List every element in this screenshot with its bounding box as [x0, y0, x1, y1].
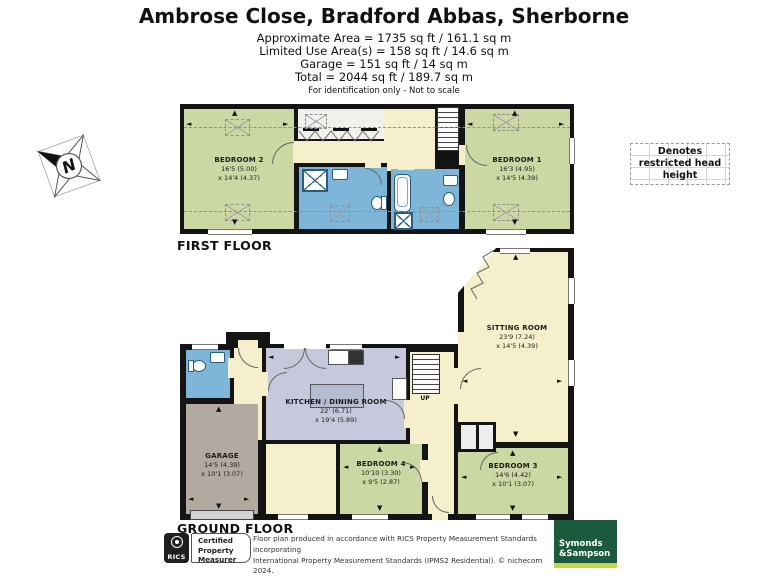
toilet-fixture: [443, 192, 455, 206]
agent-line: &Sampson: [559, 550, 610, 560]
dimension-arrow: ◄: [268, 354, 273, 361]
restricted-area-marker: [420, 207, 439, 222]
dimension-arrow: ◄: [343, 464, 348, 471]
opening-hall-sitting: [452, 368, 460, 404]
dimension-arrow: ◄: [467, 121, 472, 128]
dimension-arrow: ▼: [377, 505, 382, 512]
shower-fixture: [302, 169, 328, 192]
restricted-area-marker: [330, 205, 350, 222]
utility-area: [266, 444, 336, 514]
agent-logo-text: Symonds &Sampson: [559, 540, 610, 560]
door-opening: [398, 164, 414, 170]
door-opening: [432, 512, 448, 520]
window: [208, 229, 252, 235]
rics-brand-text: RICS: [164, 553, 189, 561]
stairs-down: [437, 107, 459, 151]
dimension-arrow: ►: [395, 354, 400, 361]
dimension-arrow: ▲: [510, 450, 515, 457]
dimension-arrow: ▼: [232, 219, 237, 226]
door-opening: [404, 400, 412, 428]
bath-inner: [397, 177, 408, 207]
dimension-arrow: ►: [410, 464, 415, 471]
kitchen-sink: [328, 350, 350, 365]
disclaimer-line: International Property Measurement Stand…: [253, 556, 553, 576]
kitchen-hob: [348, 350, 364, 365]
dimension-arrow: ▲: [232, 110, 237, 117]
window: [476, 514, 510, 520]
window: [569, 138, 575, 164]
disclaimer-line: Floor plan produced in accordance with R…: [253, 534, 553, 556]
window: [486, 229, 526, 235]
window: [568, 360, 575, 386]
basin-fixture: [443, 175, 458, 186]
area-line: Approximate Area = 1735 sq ft / 161.1 sq…: [0, 31, 768, 45]
area-line: Garage = 151 sq ft / 14 sq m: [0, 57, 768, 71]
garage-door: [190, 510, 254, 520]
dimension-arrow: ▲: [216, 406, 221, 413]
agent-logo: Symonds &Sampson: [554, 520, 617, 568]
kitchen-island: [310, 384, 364, 408]
dimension-arrow: ◄: [462, 378, 467, 385]
closet-divider: [476, 425, 479, 449]
dimension-arrow: ►: [557, 378, 562, 385]
dimension-arrow: ◄: [461, 474, 466, 481]
door-opening: [365, 162, 381, 168]
compass-icon: N: [33, 130, 105, 202]
ground-floor-plan: UP: [180, 248, 574, 520]
restricted-area-marker: [225, 119, 250, 136]
area-line: Total = 2044 sq ft / 189.7 sq m: [0, 70, 768, 84]
area-line: Limited Use Area(s) = 158 sq ft / 14.6 s…: [0, 44, 768, 58]
bay-zigzag: [452, 248, 496, 300]
restricted-area-marker: [225, 204, 250, 221]
shower-fixture: [394, 212, 413, 230]
door-opening: [260, 372, 268, 396]
dimension-arrow: ▼: [510, 505, 515, 512]
bath-fixture: [394, 174, 411, 212]
window: [522, 514, 548, 520]
stairs-up: [412, 354, 440, 394]
dimension-arrow: ◄: [186, 121, 191, 128]
toilet-fixture: [192, 360, 206, 372]
landing: [298, 141, 435, 163]
first-floor-plan: DOWN ◄: [180, 104, 574, 234]
rics-lion-icon: [171, 536, 183, 548]
window: [352, 514, 388, 520]
dimension-arrow: ▼: [513, 431, 518, 438]
toilet-fixture: [188, 360, 194, 372]
toilet-fixture: [381, 196, 387, 210]
dimension-arrow: ►: [244, 496, 249, 503]
door-opening: [228, 358, 236, 378]
rics-lion-dot: [175, 540, 179, 544]
identification-note: For identification only - Not to scale: [0, 86, 768, 96]
dimension-arrow: ▲: [513, 254, 518, 261]
basin-fixture: [332, 169, 348, 180]
cert-line: Property: [198, 546, 250, 556]
restricted-head-height-legend: Denotes restricted head height: [630, 143, 730, 185]
restricted-area-marker: [305, 114, 327, 129]
lobby-closet: [458, 422, 496, 452]
dimension-arrow: ▼: [512, 219, 517, 226]
door-opening: [459, 145, 465, 165]
dimension-arrow: ▲: [377, 446, 382, 453]
floorplan-page: Ambrose Close, Bradford Abbas, Sherborne…: [0, 0, 768, 576]
rics-logo: RICS: [164, 533, 189, 563]
footer-disclaimer: Floor plan produced in accordance with R…: [253, 534, 553, 576]
oven-appliance: [392, 378, 407, 400]
dormer-zigzag: [298, 128, 384, 144]
cert-line: Measurer: [198, 555, 250, 565]
basin-fixture: [210, 352, 225, 363]
page-title: Ambrose Close, Bradford Abbas, Sherborne: [0, 4, 768, 28]
window: [192, 344, 218, 350]
dimension-arrow: ▲: [512, 110, 517, 117]
dimension-arrow: ►: [283, 121, 288, 128]
dimension-arrow: ►: [557, 474, 562, 481]
agent-logo-accent-bar: [554, 563, 617, 568]
window: [278, 514, 308, 520]
cert-line: Certified: [198, 536, 250, 546]
dimension-arrow: ◄: [188, 496, 193, 503]
window: [330, 344, 362, 350]
legend-text: Denotes restricted head height: [631, 146, 729, 182]
rics-certified-badge: Certified Property Measurer: [191, 533, 251, 563]
dimension-arrow: ►: [559, 121, 564, 128]
dimension-arrow: ▼: [216, 503, 221, 510]
window: [568, 278, 575, 304]
